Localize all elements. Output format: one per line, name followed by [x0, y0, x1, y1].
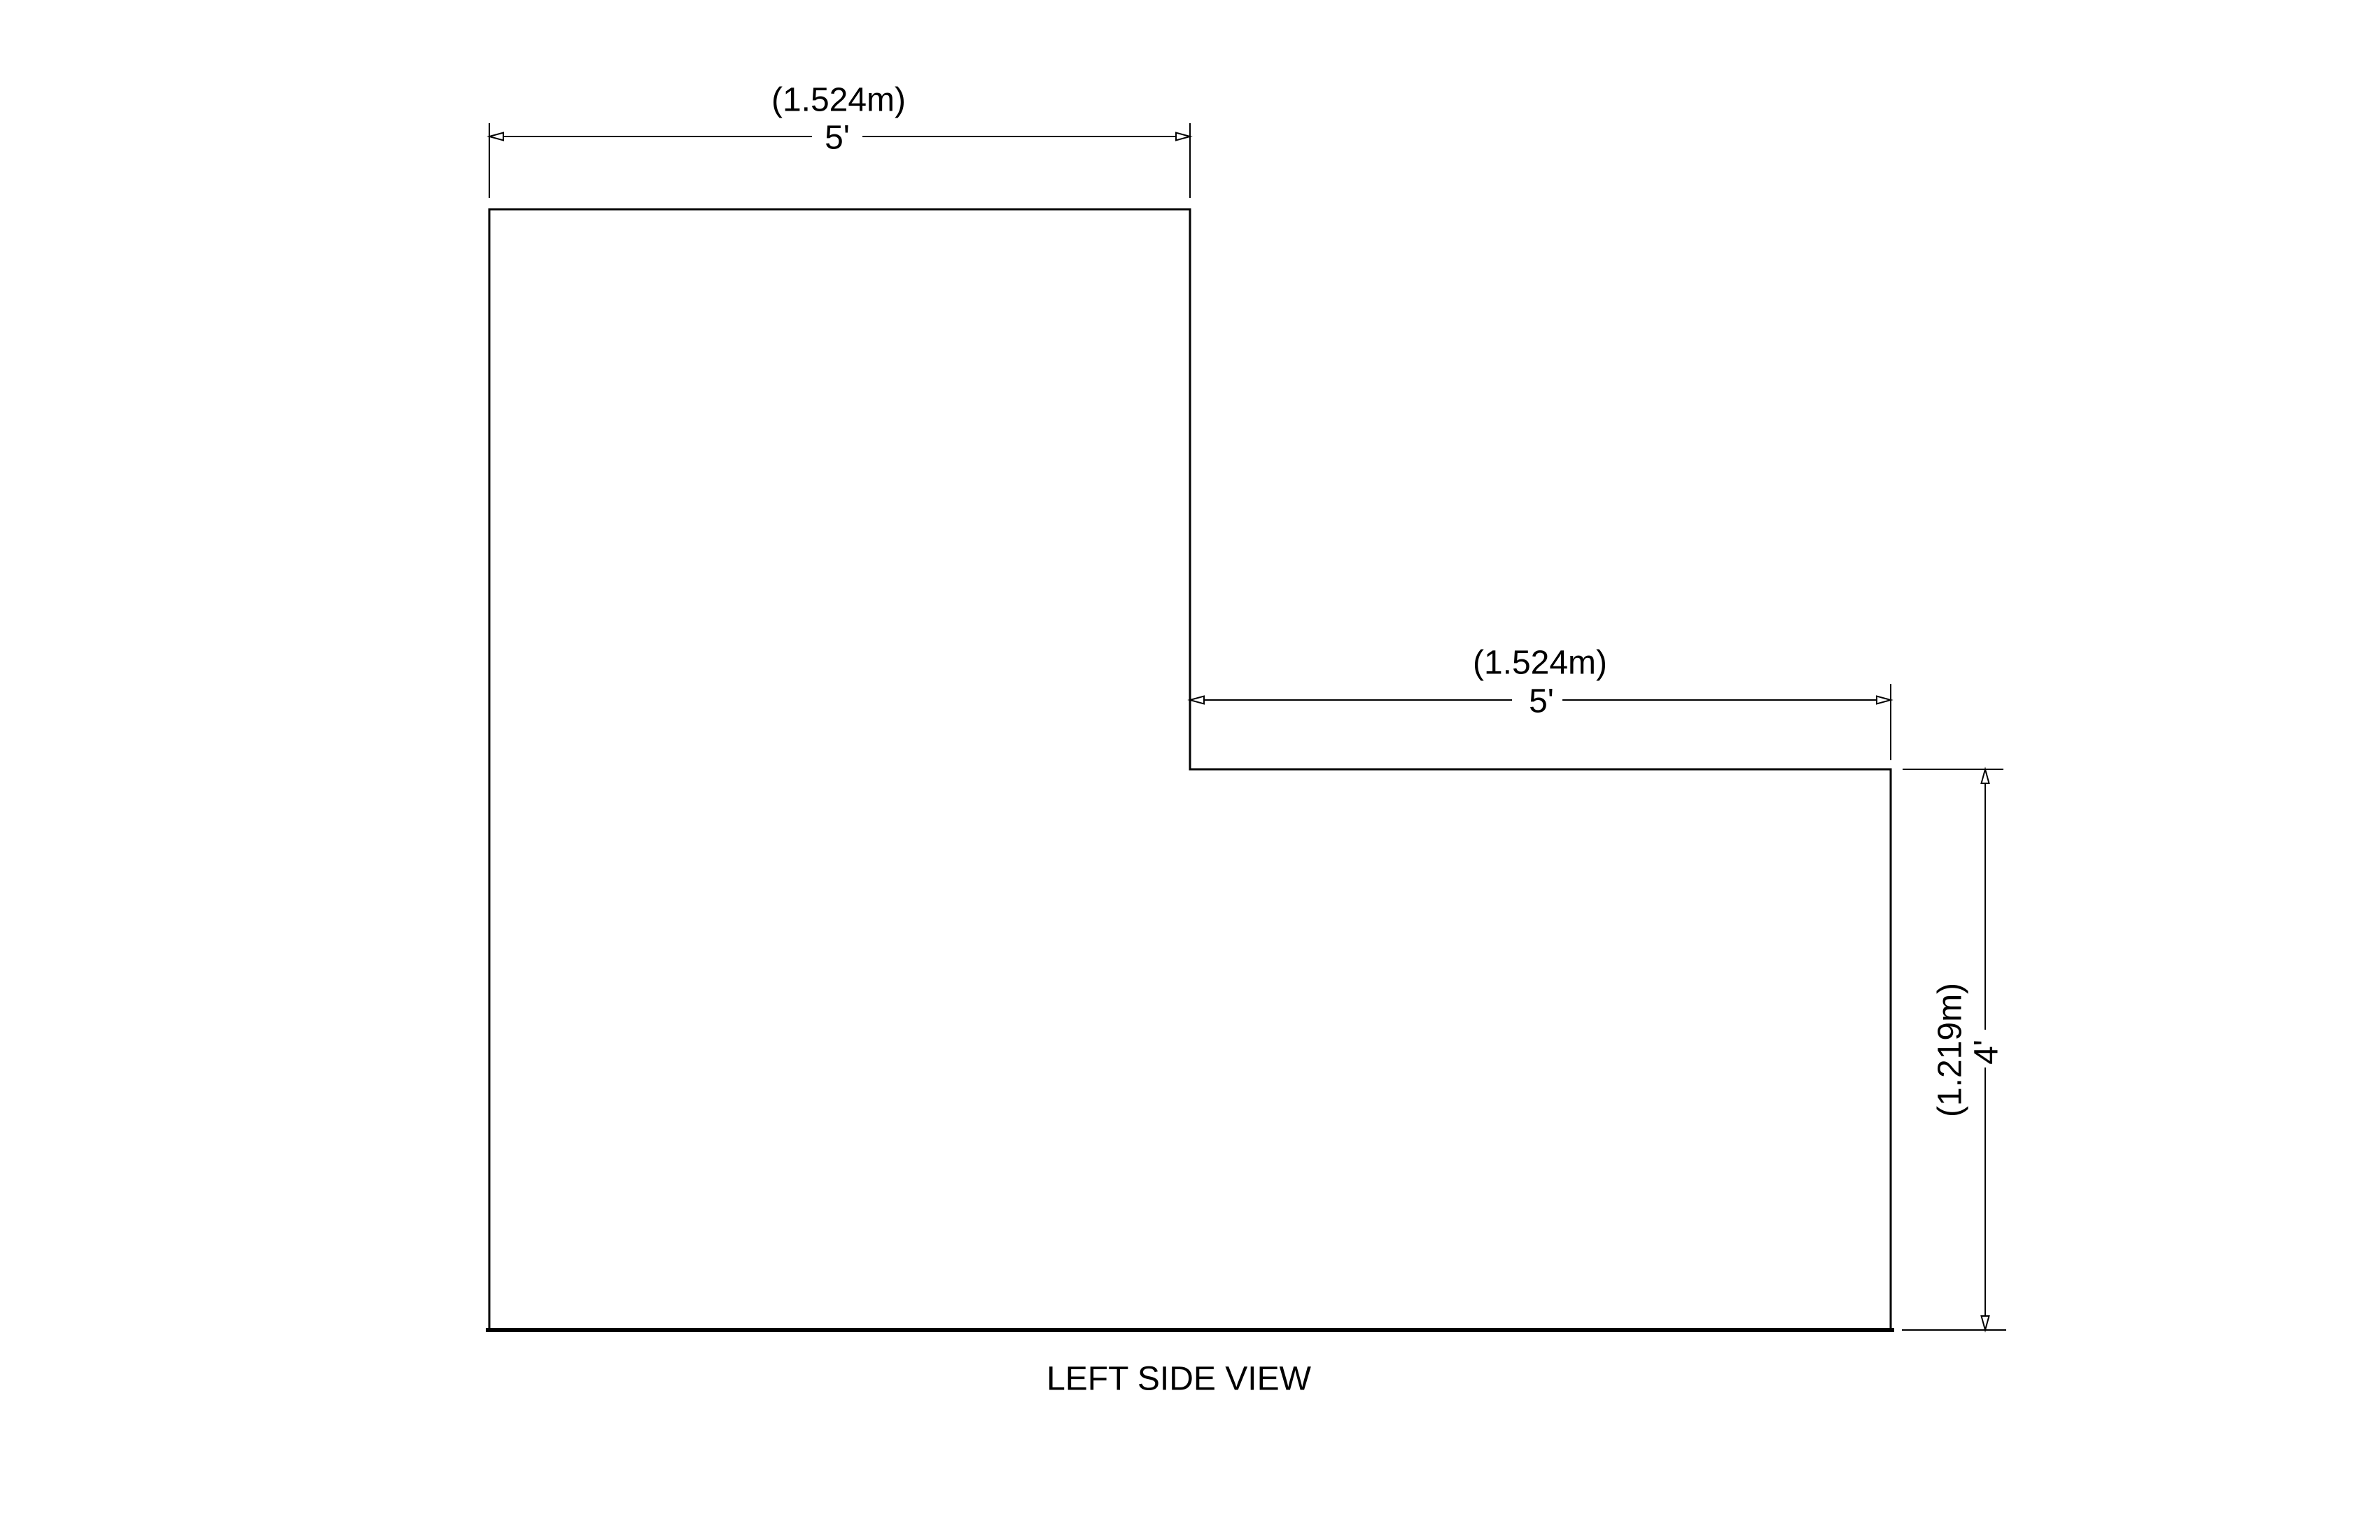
right-dim-metric-label: (1.219m) — [1932, 983, 1969, 1117]
top-dim-imperial-label: 5' — [825, 120, 850, 157]
top-dim-metric-label: (1.524m) — [771, 82, 906, 119]
step-dim-metric-label: (1.524m) — [1473, 645, 1607, 682]
step-dim-imperial-label: 5' — [1529, 683, 1554, 720]
cad-drawing-canvas: (1.524m) 5' (1.524m) 5' (1.219m) 4' LEFT… — [0, 0, 2380, 1540]
right-dim-imperial-label: 4' — [1968, 1039, 2005, 1065]
view-title: LEFT SIDE VIEW — [1046, 1361, 1312, 1398]
